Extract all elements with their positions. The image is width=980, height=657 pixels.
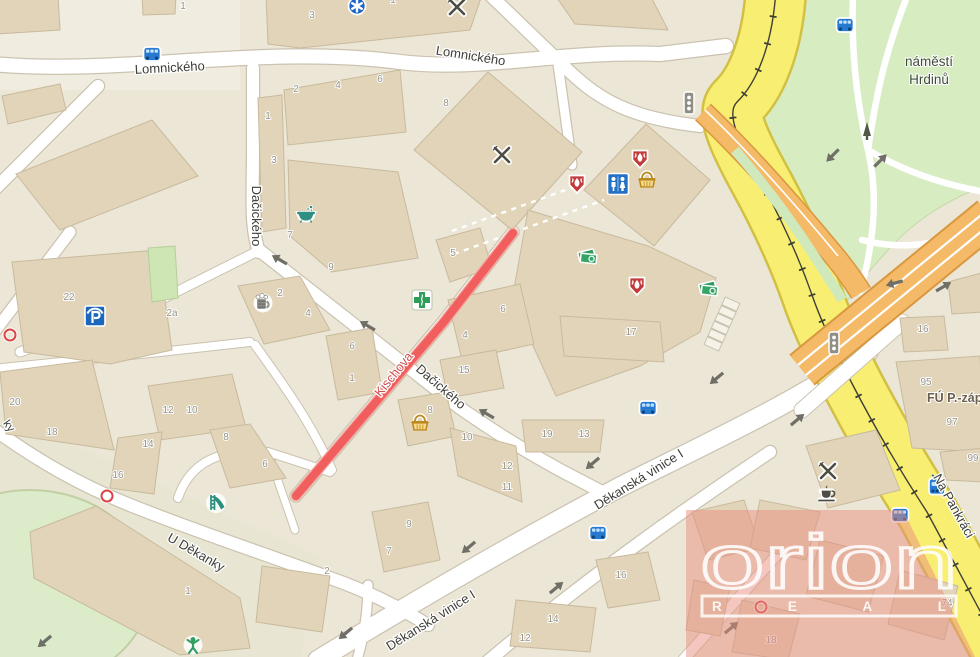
house-number: 99 bbox=[967, 453, 979, 464]
house-number: 4 bbox=[335, 80, 341, 91]
house-number: 3 bbox=[309, 10, 315, 21]
house-number: 2 bbox=[277, 288, 283, 299]
house-number: 1 bbox=[185, 586, 191, 597]
watermark: orion R E A L bbox=[686, 510, 975, 657]
pocket-park bbox=[148, 246, 178, 302]
house-number: 5 bbox=[450, 248, 456, 259]
street-label-dacickeho-vertical: Dačického bbox=[249, 186, 264, 247]
house-number: 6 bbox=[262, 459, 268, 470]
house-number: 20 bbox=[9, 397, 21, 408]
house-number: 1 bbox=[390, 0, 396, 6]
house-number: 97 bbox=[946, 417, 958, 428]
house-number: 6 bbox=[377, 74, 383, 85]
house-number: 22 bbox=[63, 292, 75, 303]
house-number: 17 bbox=[625, 327, 637, 338]
house-number: 9 bbox=[328, 262, 334, 273]
house-number: 12 bbox=[162, 405, 174, 416]
house-number: 18 bbox=[46, 427, 58, 438]
office-label: FÚ P.-západ bbox=[927, 390, 980, 405]
traffic-light-icon bbox=[829, 332, 839, 354]
house-number: 2 bbox=[293, 84, 299, 95]
house-number: 10 bbox=[186, 405, 198, 416]
house-number: 10 bbox=[461, 432, 473, 443]
watermark-brand: orion bbox=[700, 520, 958, 605]
house-number: 16 bbox=[615, 570, 627, 581]
house-number: 9 bbox=[406, 519, 412, 530]
emergency-icon[interactable] bbox=[349, 0, 366, 15]
house-number: 7 bbox=[386, 546, 392, 557]
house-number: 12 bbox=[519, 633, 531, 644]
house-number: 6 bbox=[500, 304, 506, 315]
house-number: 14 bbox=[547, 614, 559, 625]
house-number: 11 bbox=[502, 482, 513, 493]
house-number: 6 bbox=[349, 341, 355, 352]
house-number: 8 bbox=[443, 98, 449, 109]
house-number: 19 bbox=[541, 429, 553, 440]
house-number: 1 bbox=[265, 111, 271, 122]
house-number: 2a bbox=[166, 308, 178, 319]
bus-stop-icon[interactable] bbox=[144, 47, 161, 61]
bus-stop-icon[interactable] bbox=[837, 18, 854, 32]
covered-parking-icon[interactable] bbox=[85, 306, 105, 326]
park-label-line2: Hrdinů bbox=[909, 72, 949, 87]
house-number: 1 bbox=[349, 373, 355, 384]
park-label-line1: náměstí bbox=[905, 54, 953, 69]
wc-icon[interactable] bbox=[608, 174, 629, 195]
house-number: 3 bbox=[271, 155, 277, 166]
house-number: 2 bbox=[324, 566, 330, 577]
pharmacy-icon[interactable] bbox=[412, 290, 432, 310]
house-number: 4 bbox=[462, 330, 468, 341]
pub-icon[interactable] bbox=[254, 294, 273, 313]
bus-stop-icon[interactable] bbox=[590, 526, 607, 540]
house-number: 8 bbox=[223, 432, 229, 443]
house-number: 4 bbox=[305, 308, 311, 319]
house-number: 1 bbox=[180, 1, 186, 12]
house-number: 12 bbox=[501, 461, 513, 472]
playground-icon[interactable] bbox=[206, 493, 226, 513]
house-number: 7 bbox=[287, 230, 293, 241]
house-number: 14 bbox=[142, 439, 154, 450]
house-number: 13 bbox=[578, 429, 590, 440]
house-number: 8 bbox=[427, 405, 433, 416]
house-number: 95 bbox=[920, 377, 932, 388]
map-canvas[interactable]: Lomnického Lomnického Dačického Dačickéh… bbox=[0, 0, 980, 657]
sports-icon[interactable] bbox=[184, 636, 203, 655]
bus-stop-icon[interactable] bbox=[640, 401, 657, 415]
house-number: 16 bbox=[917, 324, 929, 335]
house-number: 16 bbox=[112, 470, 124, 481]
house-number: 15 bbox=[458, 365, 470, 376]
traffic-light-icon bbox=[684, 92, 694, 114]
